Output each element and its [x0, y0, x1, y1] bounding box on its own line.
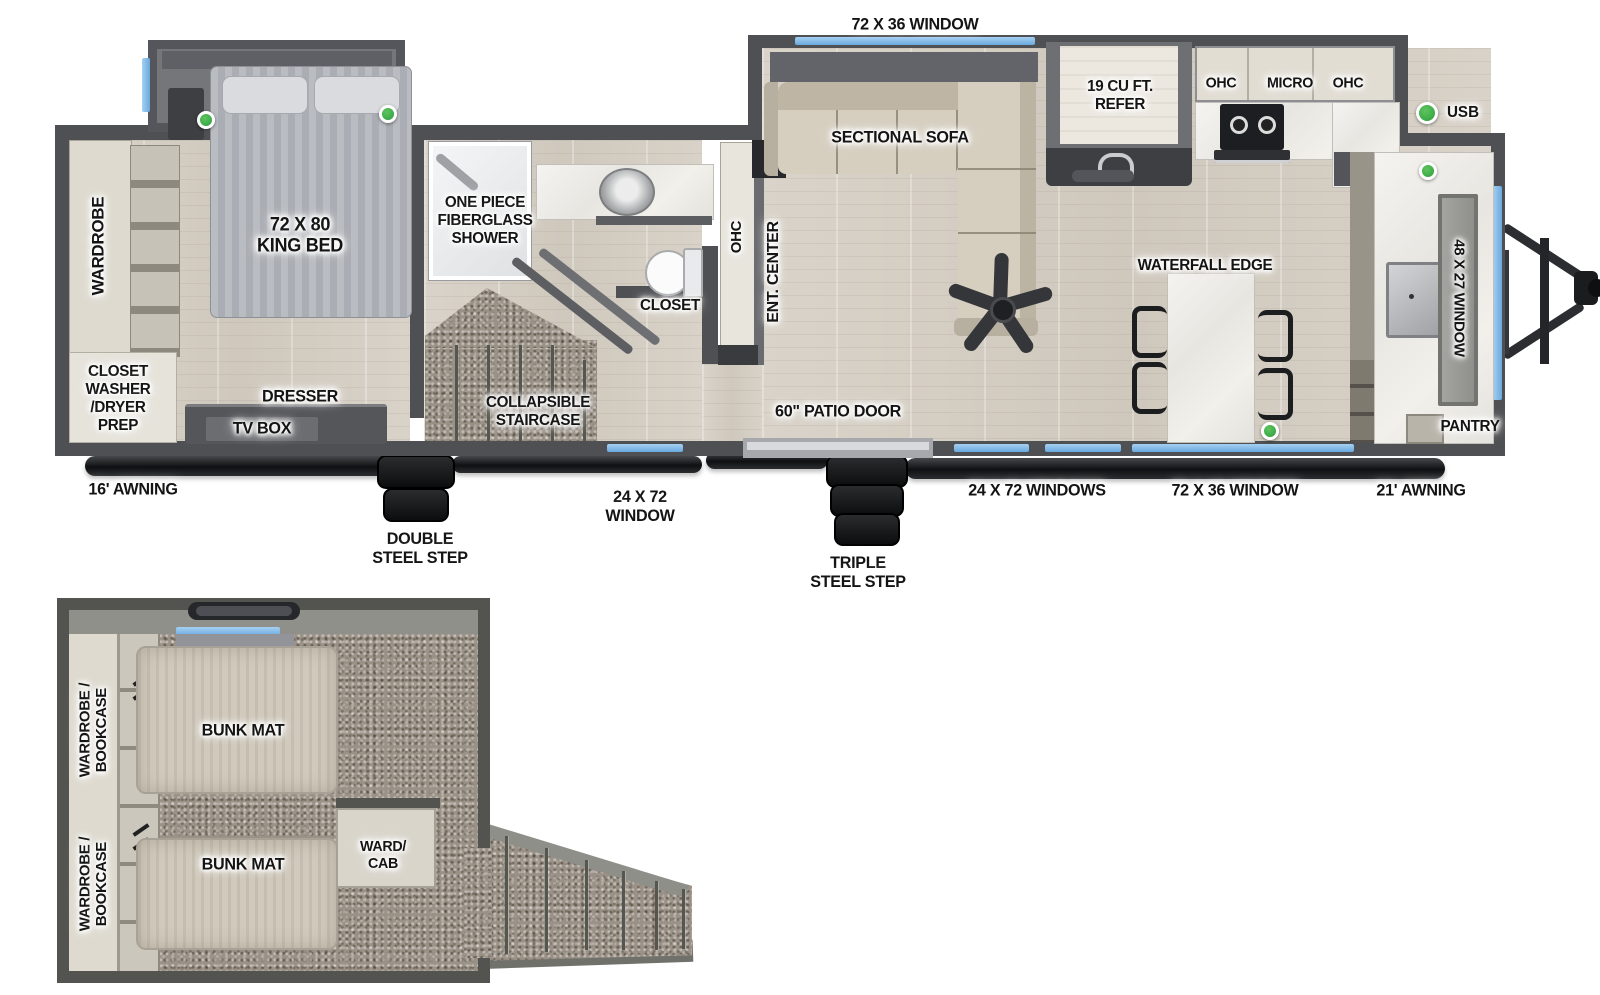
bed-usb-dot-left [197, 111, 215, 129]
toilet-tank [683, 248, 703, 298]
triple-steel-step-tread3 [834, 513, 900, 546]
label-triple-step: TRIPLE STEEL STEP [810, 553, 906, 591]
bedroom-drawer-stack [130, 145, 180, 357]
overhead-cabinets [1195, 46, 1395, 102]
awning-bar-mid-left [452, 456, 702, 473]
window-72x36-top-strip [795, 37, 1035, 45]
pantry-cabinet [1406, 414, 1444, 444]
oven-door [1214, 150, 1290, 163]
front-window-panel [1438, 194, 1478, 406]
window-48x27-strip [1493, 186, 1502, 400]
washer-dryer-closet [69, 352, 177, 443]
island-chair-2 [1132, 362, 1167, 414]
sectional-sofa-arm-left [764, 82, 778, 176]
ward-cab [336, 808, 436, 888]
stove-burner-left [1230, 116, 1248, 134]
usb-legend-dot [1416, 102, 1438, 124]
ceiling-fan-hub [990, 297, 1016, 323]
hall-floor [702, 364, 762, 441]
bath-vanity-edge [596, 216, 712, 225]
bathroom-sink [599, 168, 655, 216]
kitchen-sink [1072, 170, 1134, 182]
ward-cab-wall [336, 798, 440, 808]
wardrobe-cabinet [69, 140, 132, 354]
double-steel-step-tread2 [383, 488, 449, 522]
awning-bar-21ft [905, 458, 1445, 479]
bunk-mat-bottom [136, 838, 338, 950]
loft-stair-opening [464, 848, 492, 958]
double-steel-step [377, 455, 455, 489]
island-chair-3 [1258, 310, 1293, 362]
label-window-24x72: 24 X 72 WINDOW [605, 487, 674, 525]
window-72x36-bottom-strip [1132, 444, 1354, 452]
bed-usb-dot-right [379, 105, 397, 123]
label-awning-16: 16' AWNING [88, 479, 177, 498]
bedroom-side-window [142, 58, 150, 112]
wall-left [55, 125, 69, 456]
refrigerator [1060, 46, 1178, 144]
island-usb-dot [1261, 422, 1279, 440]
wall-closet [702, 246, 718, 364]
wall-jog-sofa [748, 35, 762, 140]
island-chair-4 [1258, 368, 1293, 420]
label-awning-21: 21' AWNING [1376, 480, 1465, 499]
tv-box [206, 417, 318, 441]
window-24x72-strip-b [1045, 444, 1121, 452]
kitchen-island [1167, 273, 1255, 443]
window-24x72-left-strip [607, 444, 683, 452]
front-sink [1386, 262, 1444, 338]
wall-bedroom-bath [410, 138, 424, 418]
front-drawer-stack [1350, 360, 1374, 442]
window-24x72-strip-a [954, 444, 1029, 452]
ent-center-base [718, 345, 758, 365]
ohc-cabinet-column [720, 142, 756, 349]
stove-burner-right [1258, 116, 1276, 134]
label-window-72x36-bottom: 72 X 36 WINDOW [1171, 480, 1298, 499]
loft-wardrobe-bookcase [69, 634, 120, 971]
collapsible-staircase [425, 340, 597, 441]
label-double-step: DOUBLE STEEL STEP [372, 529, 468, 567]
label-top-window: 72 X 36 WINDOW [851, 14, 978, 33]
sofa-slideout-back [770, 52, 1038, 82]
wall-front-step [1395, 133, 1505, 146]
bunk-mat-top [136, 646, 338, 794]
sectional-sofa-seats [778, 110, 958, 174]
patio-door-threshold [747, 442, 929, 450]
island-chair-1 [1132, 306, 1167, 358]
label-windows-24x72: 24 X 72 WINDOWS [968, 480, 1106, 499]
king-bed-pillow-left [222, 76, 308, 114]
floorplan-canvas: USB 72 X 36 WINDOW WARDROBE CLOSET WASHE… [0, 0, 1600, 995]
counter-usb-dot [1419, 162, 1437, 180]
